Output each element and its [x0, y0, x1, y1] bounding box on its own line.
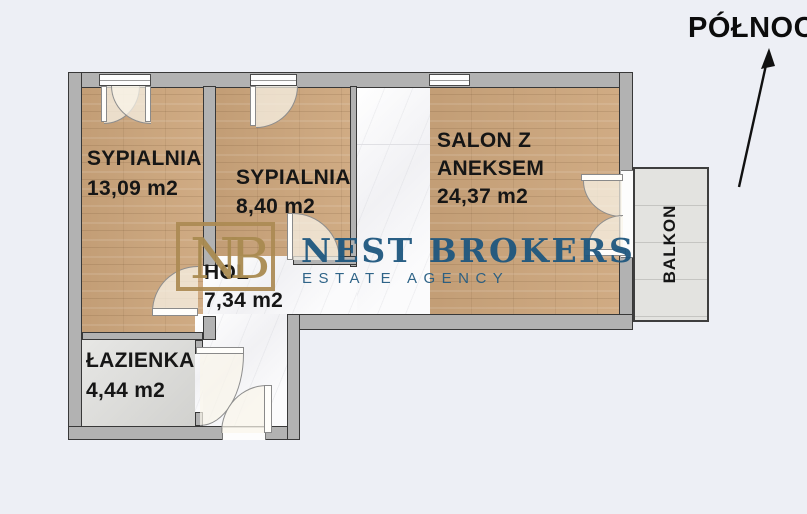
door-leaf-entrance [264, 385, 272, 433]
door-leaf-bathroom [196, 347, 244, 354]
label-bedroom1-area: 13,09 m2 [87, 178, 178, 199]
wall-left [68, 72, 82, 440]
label-bedroom2-area: 8,40 m2 [236, 196, 315, 217]
label-bathroom-area: 4,44 m2 [86, 380, 165, 401]
brand-tagline: ESTATE AGENCY [302, 270, 509, 287]
label-bedroom2-name: SYPIALNIA [236, 167, 351, 188]
door-leaf-bedroom1 [152, 308, 198, 316]
wall-bedroom1-hall-stub [203, 316, 216, 340]
brand-logo-initials: NB [190, 226, 261, 288]
wall-bathroom-top [82, 332, 203, 340]
brand-logo-frame: NB [176, 222, 275, 291]
label-bedroom1-name: SYPIALNIA [87, 148, 202, 169]
floor-seam [357, 144, 430, 145]
label-balcony-name: BALKON [660, 204, 680, 284]
north-arrow-icon [705, 35, 795, 200]
wall-hall-right [287, 314, 300, 440]
label-bathroom-name: ŁAZIENKA [86, 350, 195, 371]
wall-living-bottom [287, 314, 633, 330]
window-bedroom2 [250, 74, 297, 86]
window-bedroom1 [99, 74, 151, 86]
door-leaf-balcony [581, 174, 623, 181]
window-leaf [101, 86, 107, 122]
floor-plan-canvas: SYPIALNIA 13,09 m2 SYPIALNIA 8,40 m2 SAL… [0, 0, 807, 514]
window-leaf [145, 86, 151, 122]
label-living-name-line2: ANEKSEM [437, 158, 544, 179]
label-living-area: 24,37 m2 [437, 186, 528, 207]
window-kitchen [429, 74, 470, 86]
label-hall-area: 7,34 m2 [204, 290, 283, 311]
label-living-name-line1: SALON Z [437, 130, 531, 151]
door-leaf-bedroom2 [287, 213, 293, 260]
window-leaf [250, 86, 256, 126]
brand-name: NEST BROKERS [301, 231, 635, 270]
